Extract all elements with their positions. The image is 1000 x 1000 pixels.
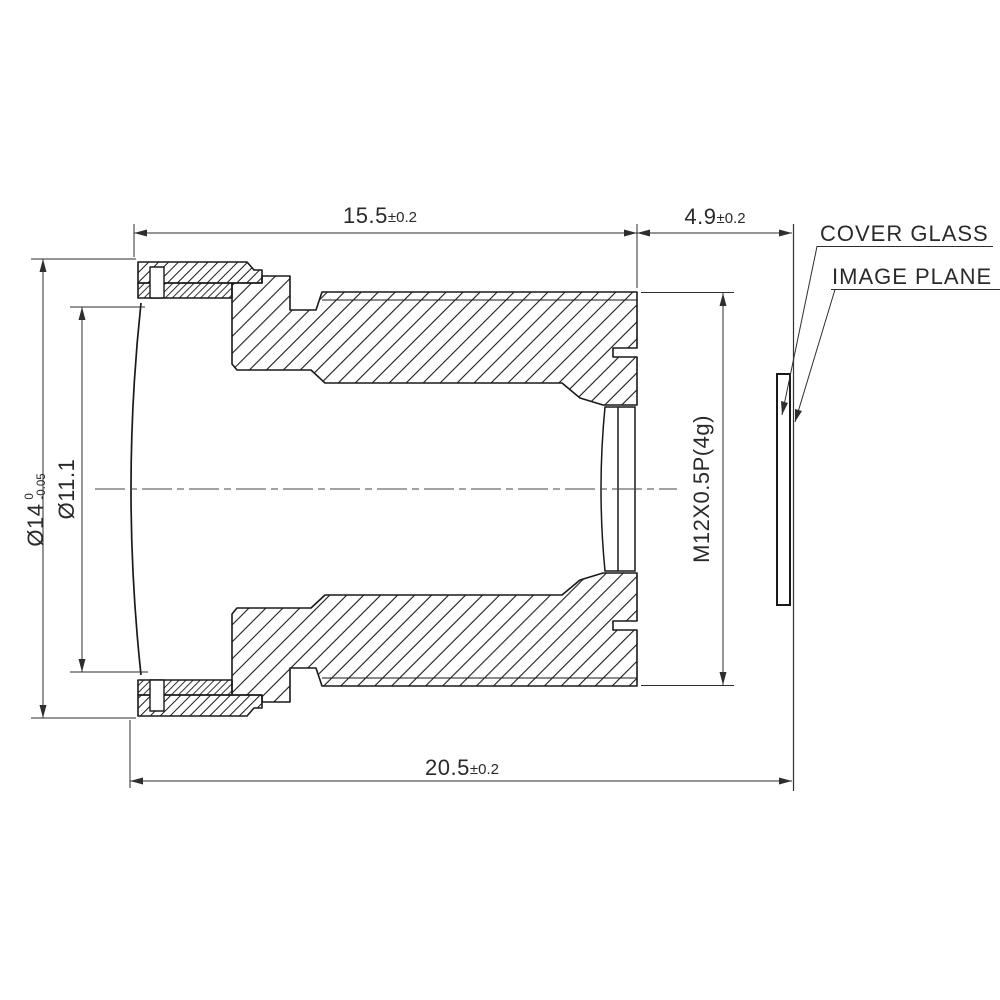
dim-barrel-length: 15.5±0.2 [343,203,417,229]
drawing-canvas [0,0,1000,1000]
dim-outer-diameter: Ø14 0 -0.05 [23,473,49,546]
dim-outer-diameter-tolerance: 0 -0.05 [24,473,48,499]
dim-outer-diameter-value: Ø14 [23,504,49,547]
ring-slot-top [150,267,164,298]
dim-total-length: 20.5±0.2 [425,755,499,781]
dim-total-length-value: 20.5 [425,755,470,780]
dim-back-focal-tol: ±0.2 [717,210,746,227]
dim-barrel-length-value: 15.5 [343,203,388,228]
dim-barrel-length-tol: ±0.2 [388,209,417,226]
cover-glass-label: COVER GLASS [820,221,989,247]
dim-back-focal-value: 4.9 [684,204,716,229]
lens-mechanical-drawing: 15.5±0.2 4.9±0.2 20.5±0.2 Ø14 0 -0.05 Ø1… [0,0,1000,1000]
image-plane-label: IMAGE PLANE [832,264,992,290]
dim-aperture-diameter: Ø11.1 [54,459,80,520]
barrel-body-top [232,276,637,405]
dim-back-focal: 4.9±0.2 [684,204,745,230]
ring-slot-bottom [150,680,164,711]
dim-mount-thread: M12X0.5P(4g) [689,415,715,563]
barrel-body-bottom [232,573,637,702]
dim-aperture-diameter-value: Ø11.1 [54,459,79,520]
dim-outer-diameter-tol-upper: 0 [24,473,36,499]
dim-mount-thread-value: M12X0.5P(4g) [689,415,714,563]
dim-total-length-tol: ±0.2 [470,761,499,778]
image-plane-leader [795,290,1000,423]
dim-outer-diameter-tol-lower: -0.05 [36,473,48,499]
